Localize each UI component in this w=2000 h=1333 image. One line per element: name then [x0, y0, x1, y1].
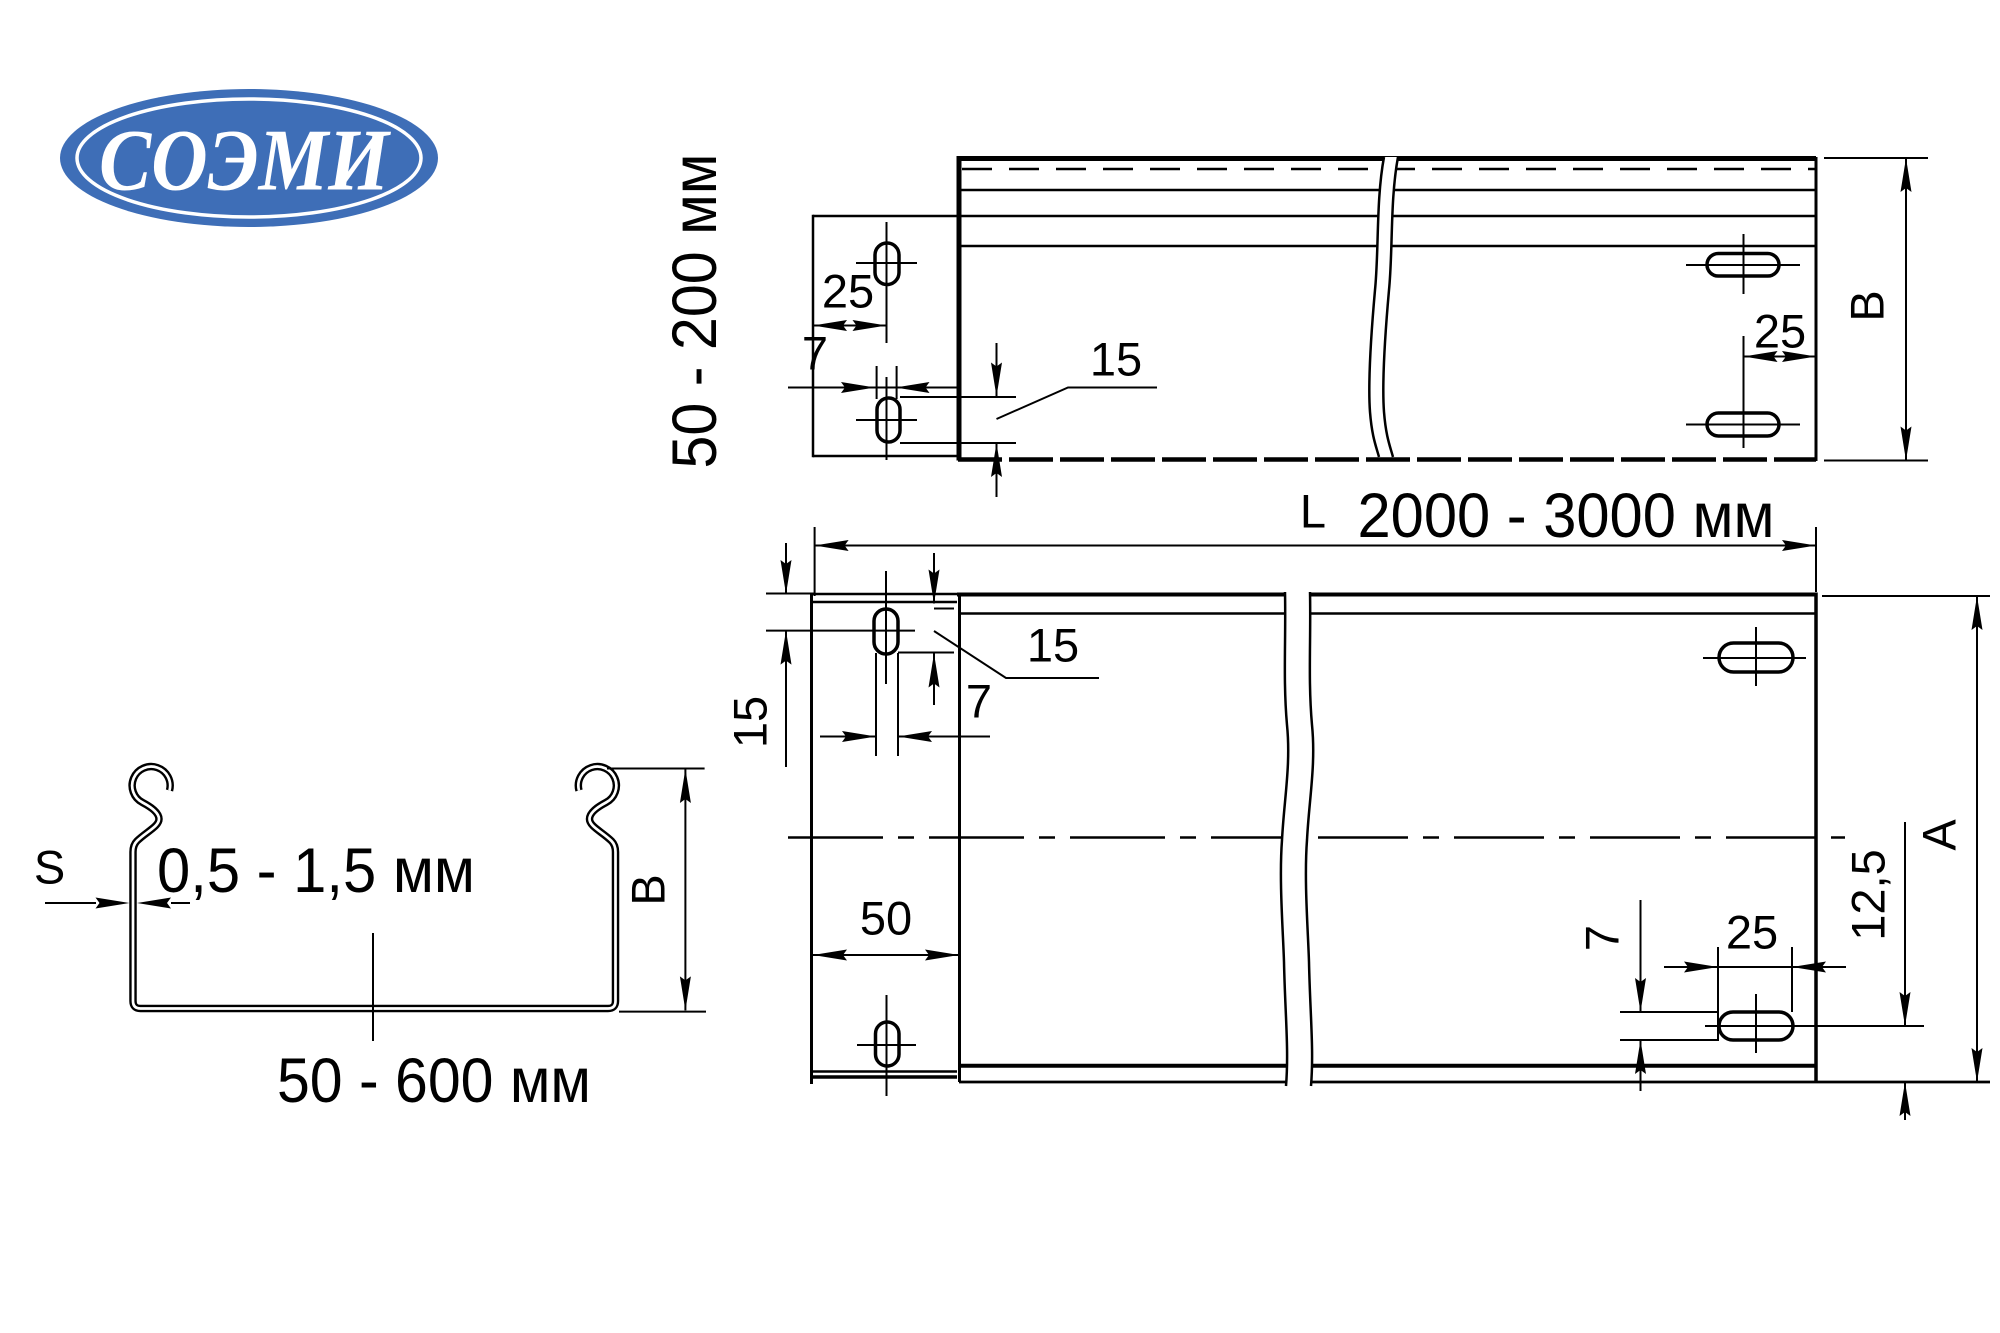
- svg-text:7: 7: [1576, 925, 1629, 951]
- svg-text:50 - 600 мм: 50 - 600 мм: [277, 1046, 591, 1116]
- svg-text:15: 15: [1090, 333, 1142, 386]
- svg-text:15: 15: [1027, 619, 1079, 672]
- svg-text:50 - 200 мм: 50 - 200 мм: [660, 154, 730, 469]
- svg-text:B: B: [622, 874, 675, 905]
- svg-text:L: L: [1300, 485, 1326, 538]
- svg-text:0,5 - 1,5 мм: 0,5 - 1,5 мм: [157, 836, 475, 906]
- svg-text:12,5: 12,5: [1842, 849, 1895, 940]
- svg-text:A: A: [1913, 819, 1966, 851]
- svg-text:7: 7: [802, 327, 828, 380]
- svg-text:S: S: [34, 841, 65, 894]
- svg-text:B: B: [1841, 290, 1894, 321]
- svg-text:25: 25: [822, 265, 874, 318]
- svg-text:15: 15: [724, 696, 777, 748]
- svg-text:50: 50: [860, 892, 912, 945]
- svg-text:25: 25: [1726, 906, 1778, 959]
- svg-text:2000 - 3000 мм: 2000 - 3000 мм: [1358, 481, 1775, 551]
- svg-text:25: 25: [1754, 305, 1806, 358]
- svg-text:7: 7: [966, 675, 992, 728]
- svg-text:СОЭМИ: СОЭМИ: [99, 113, 391, 210]
